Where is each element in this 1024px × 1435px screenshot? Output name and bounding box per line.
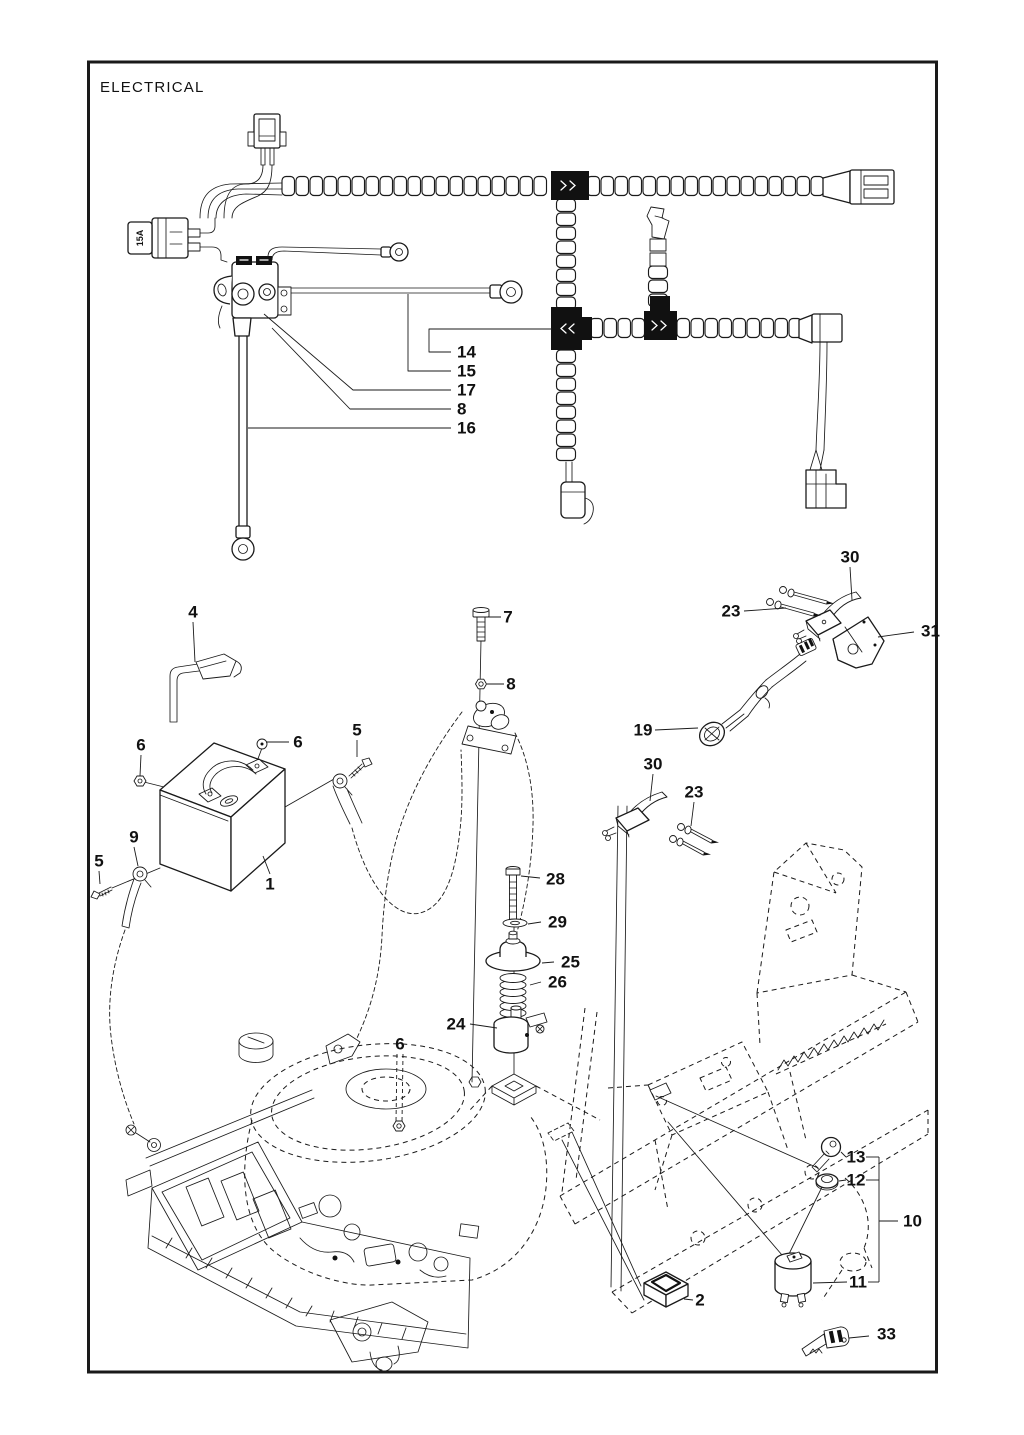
carriage-bolt-28 bbox=[506, 867, 520, 921]
callout-label-30: 30 bbox=[841, 548, 860, 567]
hex-bolt-5-left bbox=[91, 887, 112, 899]
engine-stud bbox=[469, 1077, 481, 1087]
callout-leader bbox=[839, 1180, 846, 1181]
wiring-cable-19 bbox=[695, 638, 817, 751]
hex-nut-6-right bbox=[257, 739, 267, 749]
callout-leader bbox=[691, 802, 694, 826]
small-ring-terminal-wire bbox=[268, 243, 408, 261]
harness-tube bbox=[587, 177, 824, 196]
hex-bolt-5-right bbox=[349, 758, 372, 778]
callout-label-6: 6 bbox=[136, 736, 145, 755]
callout-leader bbox=[813, 1282, 847, 1283]
callout-leader bbox=[396, 1054, 397, 1122]
key-33 bbox=[802, 1327, 849, 1356]
callout-leader bbox=[408, 294, 451, 371]
harness-connector-right bbox=[823, 170, 894, 204]
callout-label-19: 19 bbox=[634, 721, 653, 740]
parts-diagram: ELECTRICAL bbox=[0, 0, 1024, 1435]
battery bbox=[160, 743, 285, 891]
flange-nut-8 bbox=[476, 679, 487, 689]
callout-label-2: 2 bbox=[695, 1291, 704, 1310]
harness-tube bbox=[282, 177, 547, 196]
callout-label-29: 29 bbox=[548, 913, 567, 932]
callout-label-1: 1 bbox=[265, 875, 274, 894]
tape-junction bbox=[551, 171, 589, 200]
callout-label-28: 28 bbox=[546, 870, 565, 889]
callout-leader bbox=[744, 608, 786, 611]
interlock-switch-lower bbox=[603, 792, 668, 841]
callout-label-12: 12 bbox=[847, 1171, 866, 1190]
chassis-illustration bbox=[470, 843, 928, 1313]
callout-leader bbox=[878, 632, 914, 637]
callout-leader bbox=[272, 328, 451, 409]
callout-leader bbox=[528, 922, 541, 924]
callout-label-25: 25 bbox=[561, 953, 580, 972]
retainer-cup-25 bbox=[486, 931, 540, 971]
fuse-rating-label: 15A bbox=[135, 229, 145, 246]
flag-terminal bbox=[647, 207, 669, 266]
washer-29 bbox=[503, 919, 527, 927]
callout-leader bbox=[684, 1299, 693, 1300]
mounting-bracket-31 bbox=[833, 617, 884, 668]
battery-cable-positive bbox=[333, 774, 362, 824]
callout-label-24: 24 bbox=[447, 1015, 466, 1034]
harness-tube bbox=[557, 350, 576, 461]
starter-solenoid-module bbox=[462, 699, 516, 754]
callout-label-23: 23 bbox=[685, 783, 704, 802]
callout-leader bbox=[655, 728, 698, 730]
callout-leader bbox=[849, 1336, 869, 1338]
callout-label-33: 33 bbox=[877, 1325, 896, 1344]
harness-tube bbox=[590, 319, 645, 338]
callout-label-5: 5 bbox=[352, 721, 361, 740]
screws-23-lower bbox=[670, 824, 720, 856]
engine-nut-6 bbox=[393, 1121, 405, 1131]
harness-connector-lower-right bbox=[799, 314, 846, 508]
callout-label-8: 8 bbox=[457, 400, 466, 419]
harness-connector-top bbox=[248, 114, 286, 165]
callout-label-17: 17 bbox=[457, 381, 476, 400]
callout-leader bbox=[99, 871, 100, 884]
callout-label-7: 7 bbox=[503, 608, 512, 627]
harness-tube bbox=[557, 199, 576, 310]
tape-junction bbox=[644, 311, 677, 340]
callout-label-6: 6 bbox=[395, 1035, 404, 1054]
page-border bbox=[89, 62, 937, 1372]
ignition-switch-11 bbox=[775, 1252, 811, 1307]
seat-switch-mount-plate bbox=[492, 1074, 536, 1105]
callout-leader bbox=[530, 982, 541, 985]
callout-leader bbox=[264, 314, 451, 390]
fuse-holder: 15A bbox=[128, 218, 227, 262]
callout-label-6: 6 bbox=[293, 733, 302, 752]
callout-leader bbox=[429, 329, 552, 352]
ring-terminal-wire bbox=[291, 281, 522, 303]
hex-bolt-7 bbox=[473, 608, 489, 642]
serrated-rack bbox=[778, 1020, 884, 1070]
callout-label-13: 13 bbox=[847, 1148, 866, 1167]
callout-leader bbox=[402, 1054, 403, 1122]
callout-label-10: 10 bbox=[903, 1212, 922, 1231]
callout-label-26: 26 bbox=[548, 973, 567, 992]
tape-junction bbox=[551, 307, 582, 350]
callout-label-23: 23 bbox=[722, 602, 741, 621]
callout-label-9: 9 bbox=[129, 828, 138, 847]
callout-label-11: 11 bbox=[849, 1273, 867, 1292]
manual-page: ELECTRICAL bbox=[0, 0, 1024, 1435]
callout-leader bbox=[134, 847, 138, 866]
battery-hold-down-bracket bbox=[170, 654, 241, 722]
callout-label-30: 30 bbox=[644, 755, 663, 774]
callout-label-16: 16 bbox=[457, 419, 476, 438]
hex-nut-12 bbox=[816, 1174, 838, 1190]
callout-leader bbox=[841, 1152, 846, 1157]
solenoid-battery-cable bbox=[232, 336, 254, 560]
callout-label-8: 8 bbox=[506, 675, 515, 694]
callout-label-14: 14 bbox=[457, 343, 476, 362]
relay-solenoid bbox=[214, 256, 291, 336]
frame-illustration bbox=[126, 1090, 470, 1348]
callout-label-31: 31 bbox=[921, 622, 940, 641]
callout-leader bbox=[470, 1024, 497, 1028]
callout-leader bbox=[193, 622, 195, 662]
callout-leader bbox=[521, 876, 540, 878]
fuel-cap bbox=[239, 1033, 273, 1049]
callout-label-5: 5 bbox=[94, 852, 103, 871]
callout-leader bbox=[542, 962, 554, 963]
switch-mount-hole bbox=[650, 1083, 671, 1100]
harness-connector-bottom bbox=[561, 462, 593, 524]
wiring-harness: 15A bbox=[128, 114, 894, 560]
callout-label-4: 4 bbox=[188, 603, 198, 622]
page-title: ELECTRICAL bbox=[100, 79, 205, 96]
hex-nut-6-left bbox=[134, 776, 146, 786]
harness-tube bbox=[677, 319, 802, 338]
callout-label-15: 15 bbox=[457, 362, 476, 381]
callout-leader bbox=[140, 755, 141, 776]
